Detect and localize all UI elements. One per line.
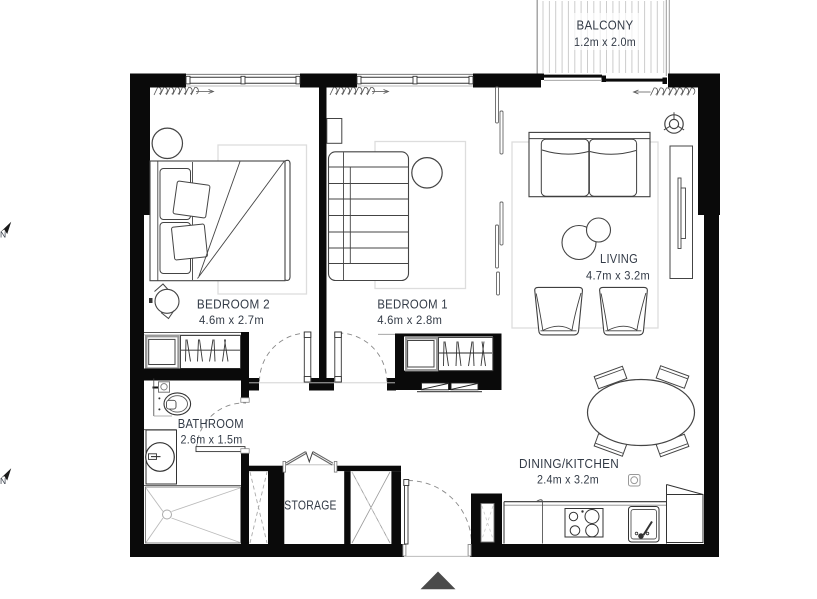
svg-text:BATHROOM: BATHROOM: [178, 417, 244, 431]
svg-text:4.6m x 2.7m: 4.6m x 2.7m: [199, 313, 264, 327]
svg-text:BALCONY: BALCONY: [577, 19, 634, 33]
svg-text:BEDROOM 1: BEDROOM 1: [377, 298, 448, 312]
svg-text:DINING/KITCHEN: DINING/KITCHEN: [519, 457, 619, 471]
svg-text:2.4m x 3.2m: 2.4m x 3.2m: [537, 473, 599, 487]
svg-text:4.6m x 2.8m: 4.6m x 2.8m: [377, 313, 442, 327]
svg-text:4.7m x 3.2m: 4.7m x 3.2m: [586, 268, 650, 282]
svg-text:2.6m x 1.5m: 2.6m x 1.5m: [181, 433, 243, 447]
svg-text:BEDROOM 2: BEDROOM 2: [197, 298, 270, 312]
svg-text:STORAGE: STORAGE: [284, 499, 337, 513]
svg-text:1.2m x 2.0m: 1.2m x 2.0m: [574, 35, 636, 49]
svg-text:LIVING: LIVING: [600, 252, 638, 266]
svg-text:N: N: [0, 230, 6, 240]
svg-text:N: N: [0, 476, 6, 486]
